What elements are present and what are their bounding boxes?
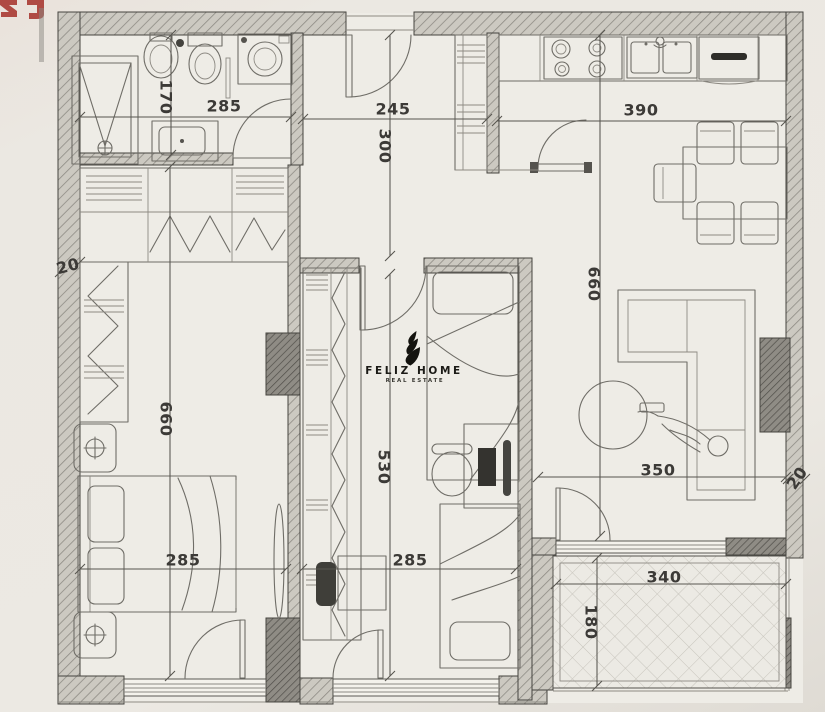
photo-artifact (39, 8, 44, 62)
dim-kitchen-width: 390 (624, 101, 659, 120)
bedroom-balcony-window (124, 679, 266, 696)
dim-bathroom-width: 285 (207, 97, 242, 116)
photo-corner-red-marking (0, 0, 44, 19)
dim-living-depth: 660 (585, 267, 604, 302)
brand-logo-title: FELIZ HOME (365, 365, 463, 377)
dim-balcony-width: 340 (647, 568, 682, 587)
dim-hall-depth: 300 (376, 129, 395, 164)
dim-bedroom-depth: 660 (157, 402, 176, 437)
dim-hall-width: 245 (376, 100, 411, 119)
dim-kids-room-depth: 530 (375, 450, 394, 485)
dim-bathroom-depth: 170 (157, 80, 176, 115)
dim-living-width: 350 (641, 461, 676, 480)
floorplan-drawing (0, 0, 825, 712)
kids-room-balcony-window (333, 679, 499, 696)
floorplan-photo: 170 285 245 300 390 20 660 285 530 285 6… (0, 0, 825, 712)
dim-kids-room-width: 285 (393, 551, 428, 570)
brand-logo-subtitle: REAL ESTATE (386, 378, 445, 384)
dim-balcony-depth: 180 (582, 605, 601, 640)
dim-bedroom-width: 285 (166, 551, 201, 570)
living-balcony-window (556, 541, 726, 553)
